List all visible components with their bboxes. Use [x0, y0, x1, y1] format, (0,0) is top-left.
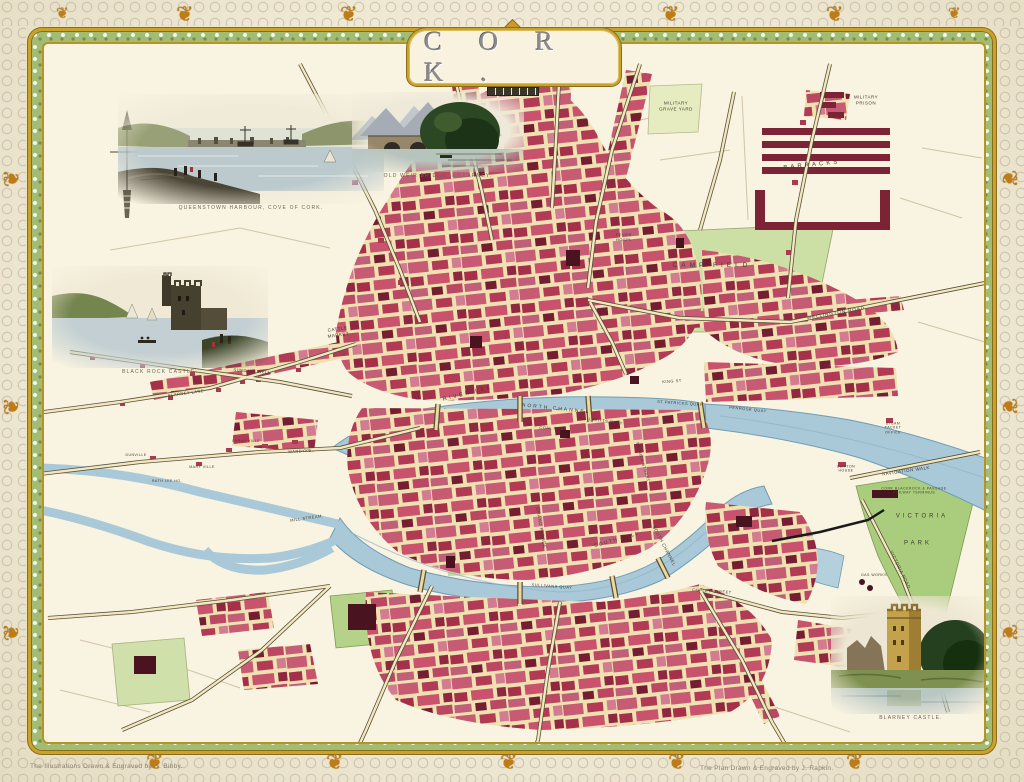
map-label: PARK	[904, 540, 932, 548]
map-label: STEAM PACKET OFFICE	[885, 421, 902, 434]
map-label: GRAND PARADE	[535, 507, 548, 549]
vignette-old-weir-bridge: OLD WEIR BRIDGE, KILLARNEY.	[352, 92, 524, 184]
map-label: BARRACKS	[783, 159, 840, 172]
map-label: CLIFTON HOUSE	[837, 465, 855, 474]
map-label: MARDYKE	[288, 448, 312, 455]
map-label: DUNVILLE	[125, 453, 146, 457]
map-label: KING ST	[662, 378, 682, 384]
credit-illustrations: The Illustrations Drawn & Engraved by H.…	[30, 763, 183, 770]
map-label: NORTH CHANNEL	[521, 402, 590, 415]
map-label: SOUTH MALL	[594, 531, 641, 550]
gold-ornament-icon: ❦	[998, 170, 1019, 188]
map-label: PENROSE QUAY	[729, 405, 767, 414]
filigree-border-left	[0, 26, 26, 756]
queenstown-harbour-illustration	[118, 94, 384, 204]
map-label: COPLEY STREET	[692, 587, 732, 595]
map-label: MILITARY GRAVE YARD	[659, 100, 693, 111]
map-label: VICTORIA	[896, 513, 948, 521]
blarney-castle-illustration	[831, 596, 986, 714]
gold-ornament-icon: ❦	[1, 170, 22, 188]
map-label: GAS WORKS	[861, 573, 887, 577]
map-canvas: MILITARY GRAVE YARDMILITARY PRISONBARRAC…	[42, 42, 986, 744]
map-label: COAL QUAY	[539, 425, 567, 431]
vignette-black-rock-castle: BLACK ROCK CASTLE.	[52, 266, 268, 382]
map-label: BLARNEY LANE	[168, 388, 205, 398]
map-label: VICTORIA ROAD	[888, 550, 911, 590]
gold-ornament-icon: ❦	[668, 752, 686, 773]
gold-ornament-icon: ❦	[500, 752, 518, 773]
gold-ornament-icon: ❦	[176, 4, 194, 25]
map-label: MARY VILLE	[189, 465, 215, 469]
gold-ornament-icon: ❦	[846, 752, 864, 773]
map-label: NAVIGATION WALK	[882, 465, 931, 477]
black-rock-castle-illustration	[52, 266, 268, 368]
map-label: MILITARY PRISON	[854, 94, 878, 105]
vignette-caption: BLARNEY CASTLE.	[831, 715, 986, 721]
gold-ornament-icon: ❦	[56, 6, 69, 21]
map-label: MILL STREAM	[290, 513, 322, 522]
map-label: FEVER HOSPL	[616, 232, 632, 242]
old-weir-bridge-illustration	[352, 92, 524, 172]
map-label: RIVER LEE	[442, 384, 493, 403]
map-label: SARAH VILLE	[232, 439, 260, 443]
vignette-caption: OLD WEIR BRIDGE, KILLARNEY.	[352, 173, 524, 179]
map-label: WELLINGTON ROAD	[806, 305, 865, 321]
map-label: CAMP FIELD	[673, 262, 752, 270]
gold-ornament-icon: ❦	[326, 752, 344, 773]
vignette-caption: QUEENSTOWN HARBOUR, COVE OF CORK.	[118, 205, 384, 211]
antique-map-page: { "title": "C O R K .", "icons": { "orna…	[0, 0, 1024, 782]
map-label: ST PATRICKS QUAY	[657, 399, 703, 407]
vignette-caption: BLACK ROCK CASTLE.	[52, 369, 268, 375]
gold-ornament-icon: ❦	[662, 4, 680, 25]
map-label: PATRICK STREET	[635, 442, 651, 482]
filigree-border-right	[998, 26, 1024, 756]
decorative-map-frame: MILITARY GRAVE YARDMILITARY PRISONBARRAC…	[28, 28, 996, 754]
vignette-queenstown-harbour: QUEENSTOWN HARBOUR, COVE OF CORK.	[118, 94, 384, 220]
gold-ornament-icon: ❦	[998, 624, 1019, 642]
gold-ornament-icon: ❦	[998, 398, 1019, 416]
gold-ornament-icon: ❦	[1, 398, 22, 416]
map-label: SOUTH CHANNEL	[651, 525, 677, 567]
map-label: CATTLE MARKET	[326, 325, 349, 339]
gold-ornament-icon: ❦	[826, 4, 844, 25]
map-title: C O R K .	[409, 26, 619, 88]
map-label: RATH LEE HO.	[152, 479, 182, 483]
vignette-blarney-castle: BLARNEY CASTLE.	[831, 596, 986, 728]
map-label: CORK BLACKROCK & PASSAGE RAILWAY TERMINU…	[881, 487, 946, 496]
scale-bar	[487, 87, 539, 96]
map-label: SULLIVANS QUAY	[531, 582, 572, 590]
credit-plan: The Plan Drawn & Engraved by J. Rapkin.	[700, 765, 833, 772]
map-label: LAVITTS QUAY	[589, 416, 623, 426]
gold-ornament-icon: ❦	[340, 4, 358, 25]
title-cartouche: C O R K .	[407, 28, 621, 86]
gold-ornament-icon: ❦	[1, 624, 22, 642]
gold-ornament-icon: ❦	[948, 6, 961, 21]
